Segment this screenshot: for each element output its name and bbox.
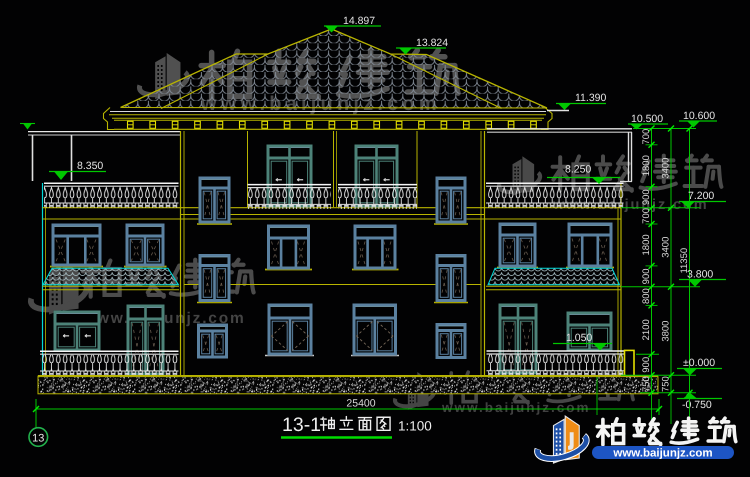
svg-text:3400: 3400 [661,158,672,179]
svg-text:700: 700 [641,129,652,145]
svg-text:8.250: 8.250 [565,164,591,176]
svg-text:800: 800 [641,288,652,304]
svg-text:www.baijunjz.com: www.baijunjz.com [441,400,591,415]
svg-text:900: 900 [641,357,652,373]
svg-text:13.824: 13.824 [416,37,448,49]
svg-text:1.050: 1.050 [566,332,592,344]
svg-text:8.350: 8.350 [77,160,103,172]
svg-text:-0.750: -0.750 [682,399,712,411]
svg-text:900: 900 [641,268,652,284]
svg-text:10.600: 10.600 [683,110,715,122]
svg-text:14.897: 14.897 [343,15,375,27]
svg-text:25400: 25400 [346,398,375,410]
svg-text:13-1: 13-1 [282,414,321,436]
svg-text:3800: 3800 [661,321,672,342]
svg-text:13: 13 [32,433,44,445]
svg-text:700: 700 [641,208,652,224]
svg-text:1800: 1800 [641,234,652,255]
svg-text:10.500: 10.500 [631,113,663,125]
svg-text:750: 750 [661,376,672,392]
svg-text:1800: 1800 [641,155,652,176]
svg-text:±0.000: ±0.000 [683,357,715,369]
svg-text:www.baijunjz.com: www.baijunjz.com [612,448,712,460]
svg-text:750: 750 [641,376,652,392]
svg-text:2100: 2100 [641,319,652,340]
svg-text:3.800: 3.800 [687,269,713,281]
svg-text:900: 900 [641,189,652,205]
svg-text:3400: 3400 [661,237,672,258]
svg-text:11.390: 11.390 [575,92,606,104]
svg-text:1:100: 1:100 [398,419,432,434]
svg-text:7.200: 7.200 [688,190,714,202]
